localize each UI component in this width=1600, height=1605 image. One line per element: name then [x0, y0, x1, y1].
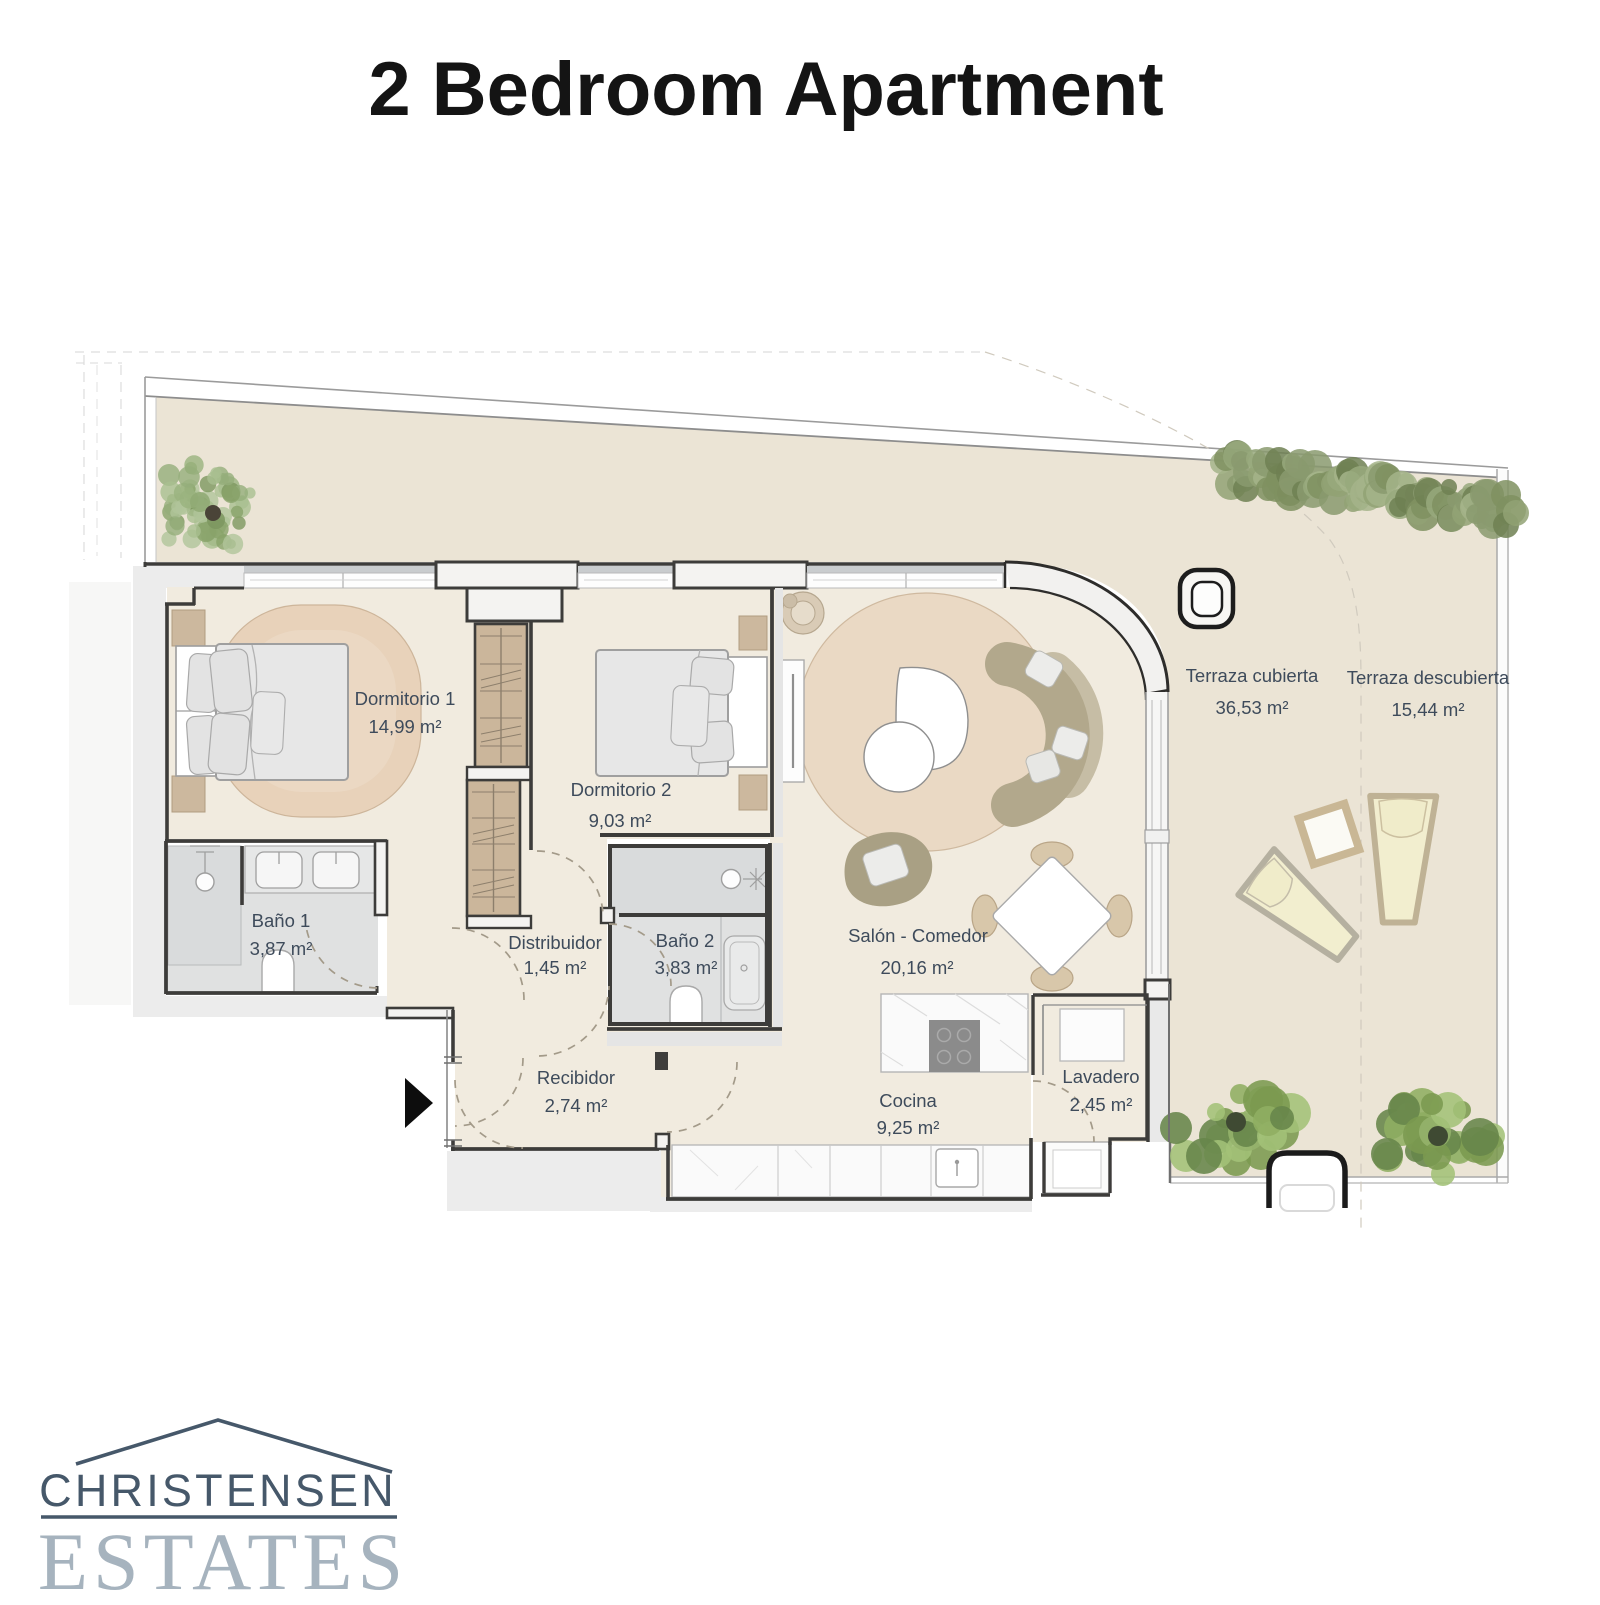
svg-text:14,99 m²: 14,99 m²: [368, 716, 441, 737]
svg-text:3,87 m²: 3,87 m²: [250, 938, 313, 959]
svg-text:Cocina: Cocina: [879, 1090, 937, 1111]
svg-text:Recibidor: Recibidor: [537, 1067, 615, 1088]
svg-text:3,83 m²: 3,83 m²: [655, 957, 718, 978]
svg-text:2,45 m²: 2,45 m²: [1070, 1094, 1133, 1115]
svg-text:ESTATES: ESTATES: [38, 1516, 408, 1600]
svg-text:15,44 m²: 15,44 m²: [1391, 699, 1464, 720]
svg-text:Lavadero: Lavadero: [1062, 1066, 1139, 1087]
svg-text:1,45 m²: 1,45 m²: [524, 957, 587, 978]
svg-text:CHRISTENSEN: CHRISTENSEN: [39, 1465, 397, 1516]
svg-text:2,74 m²: 2,74 m²: [545, 1095, 608, 1116]
svg-text:Baño 2: Baño 2: [656, 930, 715, 951]
svg-text:Terraza descubierta: Terraza descubierta: [1347, 667, 1510, 688]
svg-text:36,53 m²: 36,53 m²: [1215, 697, 1288, 718]
svg-text:Terraza cubierta: Terraza cubierta: [1186, 665, 1319, 686]
svg-text:9,25 m²: 9,25 m²: [877, 1117, 940, 1138]
svg-text:9,03 m²: 9,03 m²: [589, 810, 652, 831]
svg-text:2 Bedroom Apartment: 2 Bedroom Apartment: [368, 47, 1163, 132]
svg-text:Dormitorio 2: Dormitorio 2: [571, 779, 672, 800]
svg-text:Distribuidor: Distribuidor: [508, 932, 602, 953]
svg-text:Dormitorio 1: Dormitorio 1: [355, 688, 456, 709]
svg-text:20,16 m²: 20,16 m²: [880, 957, 953, 978]
svg-text:Baño 1: Baño 1: [252, 910, 311, 931]
svg-text:Salón - Comedor: Salón - Comedor: [848, 925, 988, 946]
